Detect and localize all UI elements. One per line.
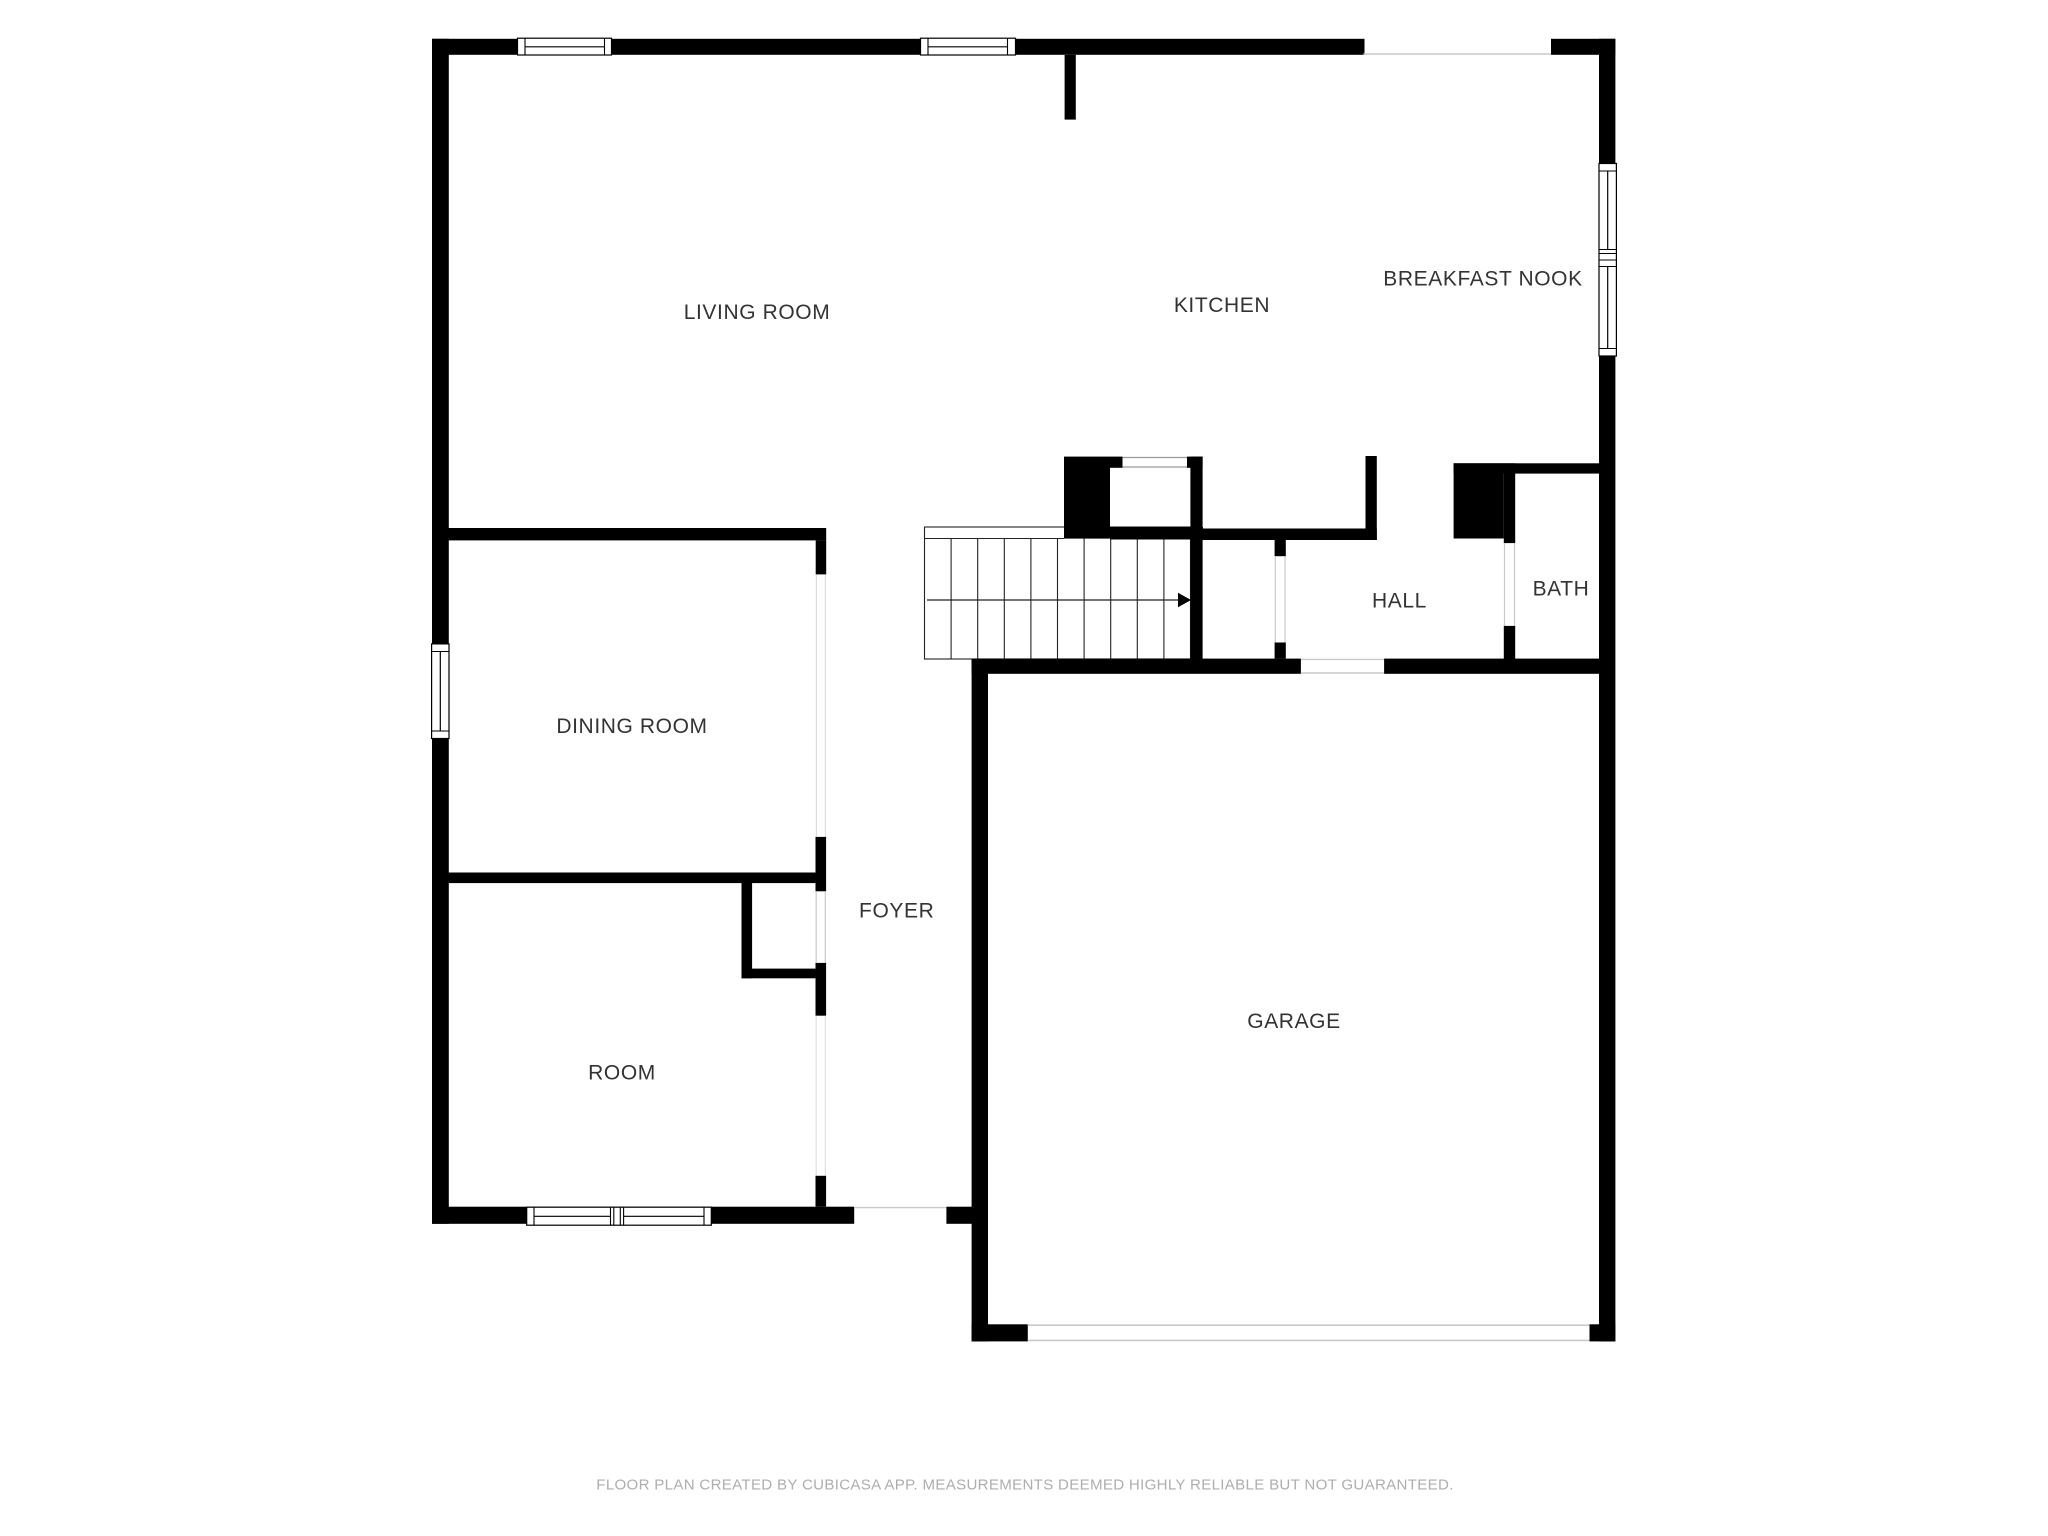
svg-text:ROOM: ROOM [588, 1062, 656, 1085]
svg-text:LIVING ROOM: LIVING ROOM [684, 301, 831, 324]
svg-text:BATH: BATH [1533, 578, 1590, 601]
svg-text:FLOOR PLAN CREATED BY CUBICASA: FLOOR PLAN CREATED BY CUBICASA APP. MEAS… [596, 1477, 1453, 1494]
svg-text:DINING ROOM: DINING ROOM [556, 715, 707, 738]
svg-text:KITCHEN: KITCHEN [1174, 294, 1270, 317]
svg-text:GARAGE: GARAGE [1247, 1010, 1340, 1033]
svg-text:FOYER: FOYER [859, 900, 934, 923]
svg-text:HALL: HALL [1372, 590, 1427, 613]
svg-text:BREAKFAST NOOK: BREAKFAST NOOK [1383, 268, 1582, 291]
